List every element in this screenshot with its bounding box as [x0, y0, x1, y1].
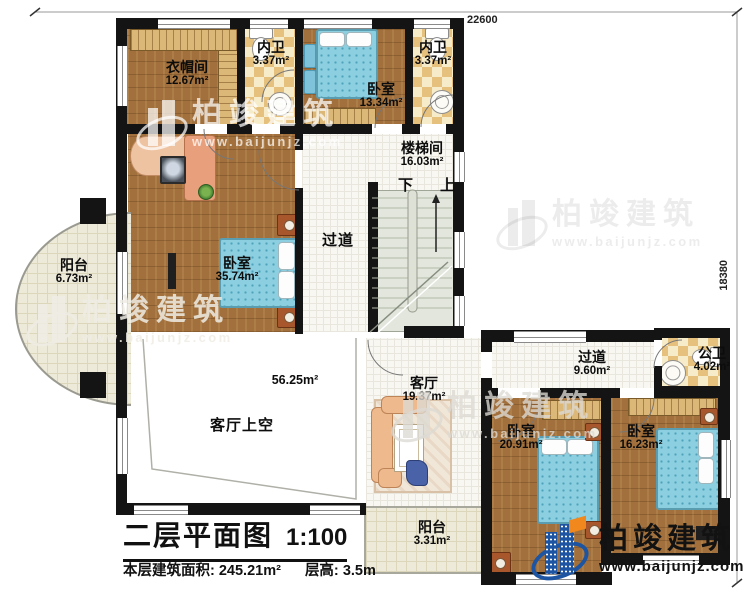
window [117, 252, 128, 314]
floor-height-value: 3.5m [343, 563, 376, 579]
door-opening [372, 124, 402, 134]
nightstand [700, 408, 718, 425]
sink [660, 360, 686, 386]
watermark-text: 柏竣建筑 www.baijunjz.com [552, 200, 703, 249]
window [454, 232, 465, 268]
door-opening [498, 388, 540, 398]
window [414, 19, 450, 29]
drawing-title: 二层平面图 1:100 [123, 514, 347, 562]
door-opening [481, 352, 492, 378]
wall [237, 18, 245, 124]
company-logo-text: 柏竣建筑 www.baijunjz.com [599, 525, 744, 575]
window [514, 331, 586, 343]
window [304, 19, 372, 29]
sink [430, 90, 454, 114]
wall [295, 188, 303, 334]
side-table [304, 70, 316, 94]
wardrobe-bedroom-bottom-left [542, 400, 606, 420]
pillow [346, 32, 372, 47]
room-label-bedroom-top: 卧室 13.34m² [360, 82, 403, 110]
computer-monitor [160, 156, 186, 184]
floor-area: 本层建筑面积: 245.21m² [123, 559, 281, 580]
pillow [698, 432, 714, 458]
drawing-subtitle: 本层建筑面积: 245.21m² 层高: 3.5m [123, 559, 376, 580]
drawing-title-text: 二层平面图 [123, 514, 273, 554]
pillow [698, 458, 714, 484]
room-label-living-void: 客厅上空 [210, 418, 274, 435]
watermark-logo-icon [500, 196, 544, 252]
plant [198, 184, 214, 200]
door-opening [620, 388, 654, 398]
floor-height: 层高: 3.5m [305, 559, 376, 580]
company-url: www.baijunjz.com [599, 558, 744, 575]
floor-plan: 22600 18380 衣帽间 12.67m² 内卫 3.37m² 卧室 13.… [0, 0, 750, 594]
wall [295, 134, 303, 150]
closet-cloakroom-top [130, 29, 238, 51]
window [454, 296, 465, 326]
nightstand [585, 423, 602, 441]
company-logo: 柏竣建筑 www.baijunjz.com [536, 518, 744, 582]
floor-stairs [371, 190, 455, 332]
room-label-corridor-main: 过道 [322, 233, 354, 250]
tv-master [168, 253, 176, 289]
room-label-bath-ensuite-1: 内卫 3.37m² [253, 40, 289, 68]
pillow [567, 439, 593, 455]
dimension-right: 18380 [718, 260, 730, 291]
stair-down-label: 下 [398, 174, 413, 195]
room-label-corridor-right: 过道 9.60m² [574, 350, 610, 378]
window [158, 19, 230, 29]
dresser [489, 552, 511, 574]
watermark-brand: 柏竣建筑 [552, 200, 703, 230]
watermark-url: www.baijunjz.com [552, 234, 703, 249]
floor-height-label: 层高: [305, 563, 339, 579]
room-label-bedroom-bottom-right: 卧室 16.23m² [620, 424, 663, 452]
pillow [278, 242, 295, 270]
window [721, 440, 731, 498]
floor-balcony-left [15, 212, 131, 406]
room-label-bedroom-bottom-left: 卧室 20.91m² [500, 424, 543, 452]
window [117, 46, 128, 106]
room-label-bedroom-master: 卧室 35.74m² [216, 256, 259, 284]
watermark: 柏竣建筑 www.baijunjz.com [500, 196, 703, 252]
sink [268, 92, 292, 116]
pillar [80, 198, 106, 224]
void-area-label: 56.25m² [272, 374, 319, 388]
window [454, 152, 465, 182]
window [117, 418, 128, 474]
door-opening [420, 124, 446, 134]
wall [405, 18, 413, 124]
dimension-top: 22600 [467, 14, 498, 26]
side-table [304, 44, 316, 68]
room-label-living-room: 客厅 19.37m² [403, 376, 446, 404]
window [250, 19, 288, 29]
pillow [278, 271, 295, 299]
pillow [319, 32, 345, 47]
floor-area-value: 245.21m² [219, 563, 281, 579]
room-label-stairwell: 楼梯间 16.03m² [401, 141, 444, 169]
room-label-bath-ensuite-2: 内卫 3.37m² [415, 40, 451, 68]
door-opening [654, 340, 662, 366]
wall [453, 18, 464, 134]
room-label-balcony-left: 阳台 6.73m² [56, 258, 92, 286]
drawing-scale: 1:100 [286, 524, 347, 552]
wall [368, 182, 378, 332]
decor-item [406, 460, 428, 486]
pillar [80, 372, 106, 398]
wall [404, 326, 464, 338]
company-brand: 柏竣建筑 [599, 525, 744, 554]
door-opening [195, 124, 227, 134]
floor-area-label: 本层建筑面积: [123, 563, 215, 579]
pillow [541, 439, 567, 455]
wall [116, 124, 464, 134]
room-label-bath-public: 公卫 4.02m² [694, 346, 730, 374]
wall [295, 18, 303, 124]
door-opening [252, 124, 280, 134]
wall [654, 328, 730, 338]
company-logo-icon [536, 518, 590, 582]
wall [481, 398, 492, 585]
room-label-balcony-bottom: 阳台 3.31m² [414, 520, 450, 548]
room-label-cloakroom: 衣帽间 12.67m² [166, 60, 209, 88]
stair-up-label: 上 [440, 174, 455, 195]
